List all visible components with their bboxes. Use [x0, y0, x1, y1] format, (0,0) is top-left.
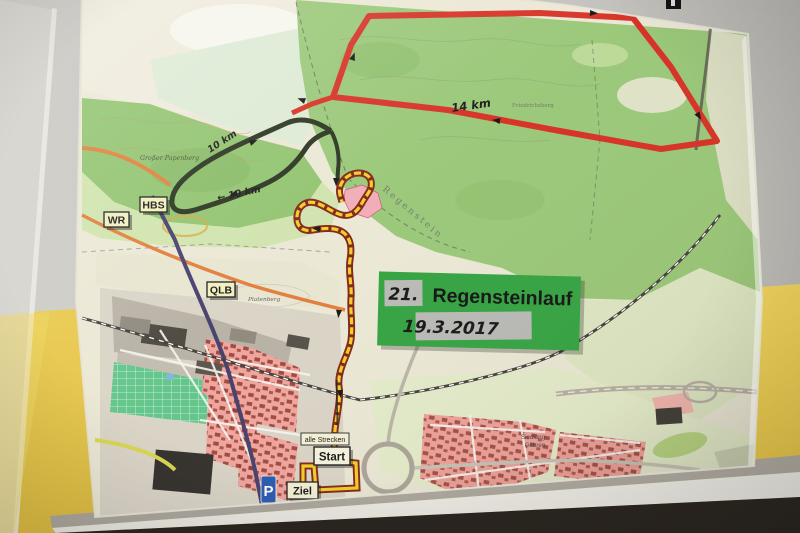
binder-clip: [666, 0, 681, 9]
map-poster: 14 km 10 km ← 10 km Großer Papenberg Reg…: [76, 0, 762, 520]
map-lighting-overlay: [76, 0, 762, 517]
photo-of-course-map: 14 km 10 km ← 10 km Großer Papenberg Reg…: [0, 0, 800, 533]
